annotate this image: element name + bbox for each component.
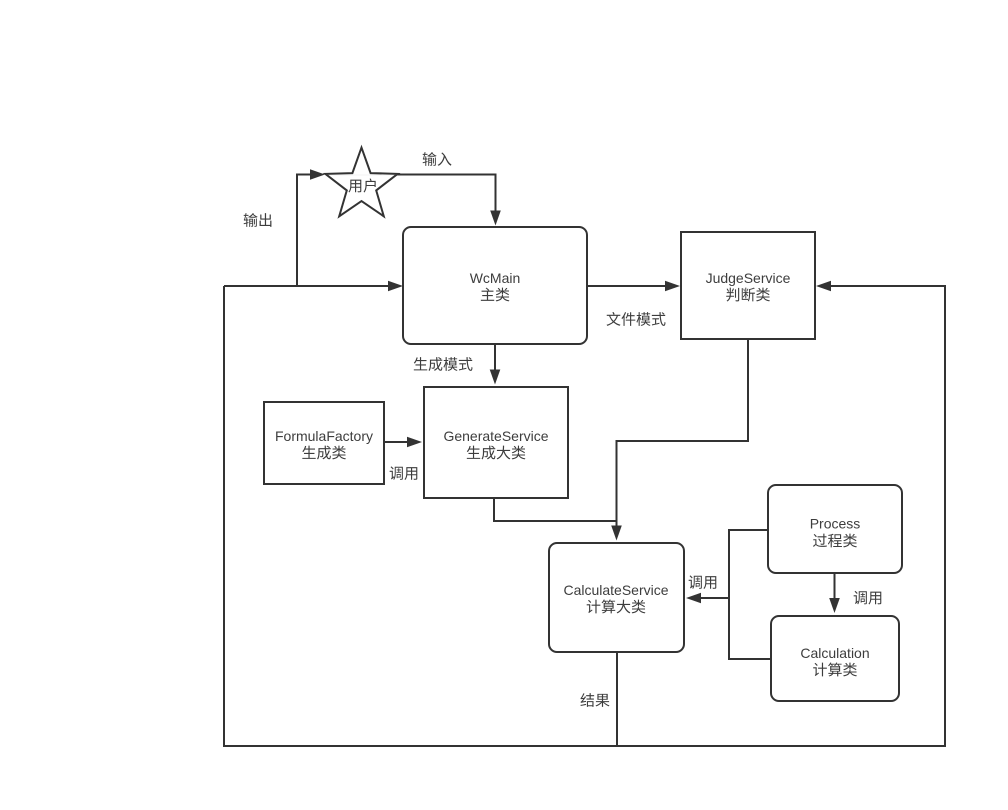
svg-text:Process: Process bbox=[810, 516, 861, 532]
svg-text:JudgeService: JudgeService bbox=[706, 270, 791, 286]
svg-text:CalculateService: CalculateService bbox=[563, 582, 668, 598]
svg-text:GenerateService: GenerateService bbox=[443, 428, 548, 444]
svg-text:Calculation: Calculation bbox=[800, 645, 869, 661]
svg-text:WcMain: WcMain bbox=[470, 270, 521, 286]
svg-text:FormulaFactory: FormulaFactory bbox=[275, 428, 373, 444]
